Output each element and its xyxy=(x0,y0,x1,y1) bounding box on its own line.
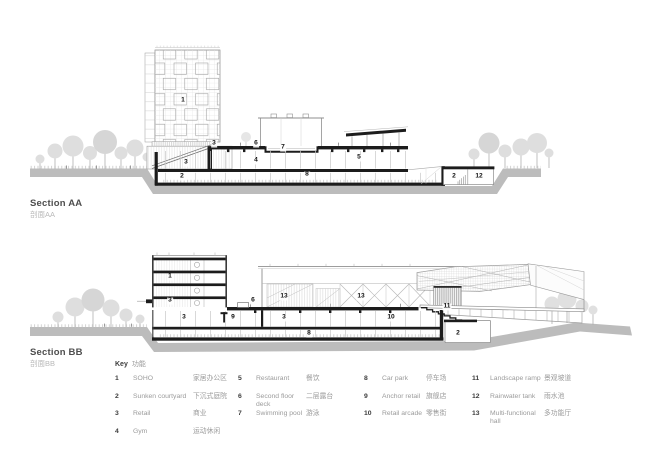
soho-block-bb xyxy=(137,253,227,308)
section-aa-subtitle: 剖面AA xyxy=(30,211,82,219)
swimming-pool xyxy=(266,146,318,152)
pergola-aa xyxy=(258,114,324,146)
key-item: 5Restaurant餐饮 xyxy=(238,375,333,393)
key-item-number: 9 xyxy=(364,393,379,401)
key-item-number: 3 xyxy=(115,410,130,418)
key-item-label-zh: 雨水池 xyxy=(544,393,571,401)
key-item-label-en: Swimming pool xyxy=(256,410,303,418)
key-item-label-en: Retail arcade xyxy=(382,410,423,418)
key-item-label-zh: 下沉式庭院 xyxy=(193,393,227,401)
truss-x-frames xyxy=(340,284,430,307)
basement-columns-bb xyxy=(158,311,438,327)
key-item-label-en: Rainwater tank xyxy=(490,393,541,401)
key-item-label-en: Gym xyxy=(133,428,190,436)
key-item-number: 12 xyxy=(472,393,487,401)
key-item: 13Multi-functional hall多功能厅 xyxy=(472,410,571,428)
key-item: 8Car park停车场 xyxy=(364,375,446,393)
soho-tower xyxy=(145,46,220,147)
bottom-slab-bb xyxy=(152,337,444,340)
tree-canopies-aa-left xyxy=(36,130,152,164)
key-title-zh: 功能 xyxy=(132,361,146,368)
key-item: 10Retail arcade零售街 xyxy=(364,410,446,428)
key-item: 11Landscape ramp景观坡道 xyxy=(472,375,571,393)
section-aa-graphic xyxy=(30,46,554,194)
basement-columns-aa xyxy=(162,151,407,169)
key-item: 6Second floor deck二层露台 xyxy=(238,393,333,411)
bottom-slab-aa xyxy=(155,183,445,186)
tree-canopies-aa-right xyxy=(469,133,554,160)
key-item-number: 8 xyxy=(364,375,379,383)
skylight-bb xyxy=(238,303,249,308)
key-item: 4Gym运动休闲 xyxy=(115,428,227,446)
sunken-courtyard-bb xyxy=(444,320,491,343)
key-item-label-zh: 多功能厅 xyxy=(544,410,571,418)
key-item-label-en: SOHO xyxy=(133,375,190,383)
key-item: 9Anchor retail旗舰店 xyxy=(364,393,446,411)
section-aa-title-block: Section AA 剖面AA xyxy=(30,199,82,219)
section-bb-title-block: Section BB 剖面BB xyxy=(30,348,83,368)
key-item-number: 2 xyxy=(115,393,130,401)
key-item-label-en: Sunken courtyard xyxy=(133,393,190,401)
key-item-label-zh: 商业 xyxy=(193,410,227,418)
section-aa-title: Section AA xyxy=(30,199,82,209)
key-item: 3Retail商业 xyxy=(115,410,227,428)
key-item-label-zh: 家居办公区 xyxy=(193,375,227,383)
key-item-label-zh: 停车场 xyxy=(426,375,446,383)
tree-canopies-bb-left xyxy=(53,289,145,324)
key-item-label-en: Restaurant xyxy=(256,375,303,383)
key-item-label-en: Anchor retail xyxy=(382,393,423,401)
key-item-number: 7 xyxy=(238,410,253,418)
key-column: 5Restaurant餐饮6Second floor deck二层露台7Swim… xyxy=(238,375,333,428)
key-title: Key xyxy=(115,361,128,368)
key-column: 11Landscape ramp景观坡道12Rainwater tank雨水池1… xyxy=(472,375,571,428)
key-item: 7Swimming pool游泳 xyxy=(238,410,333,428)
key-item-number: 4 xyxy=(115,428,130,436)
key-item-label-en: Car park xyxy=(382,375,423,383)
section-bb-subtitle: 剖面BB xyxy=(30,360,83,368)
key-column: 8Car park停车场9Anchor retail旗舰店10Retail ar… xyxy=(364,375,446,428)
key-item-label-zh: 旗舰店 xyxy=(426,393,446,401)
key-item-label-zh: 二层露台 xyxy=(306,393,333,401)
key-item-number: 6 xyxy=(238,393,253,401)
mid-slab-bb xyxy=(152,327,443,330)
key-item-label-zh: 景观坡道 xyxy=(544,375,571,383)
key-column: 1SOHO家居办公区2Sunken courtyard下沉式庭院3Retail商… xyxy=(115,375,227,445)
deck-slab-bb xyxy=(227,307,419,310)
key-item-number: 11 xyxy=(472,375,487,383)
key-item-label-zh: 零售街 xyxy=(426,410,446,418)
key-header: Key功能 xyxy=(115,361,146,369)
deck-slab-aa xyxy=(212,146,265,149)
key-item-label-zh: 运动休闲 xyxy=(193,428,227,436)
canopy-aa xyxy=(344,127,408,146)
rainwater-tank-block xyxy=(443,166,495,184)
section-bb-title: Section BB xyxy=(30,348,83,358)
key-item: 12Rainwater tank雨水池 xyxy=(472,393,571,411)
key-item-number: 13 xyxy=(472,410,487,418)
key-item-number: 10 xyxy=(364,410,379,418)
key-item-label-en: Landscape ramp xyxy=(490,375,541,383)
key-item-label-zh: 餐饮 xyxy=(306,375,333,383)
key-item-label-en: Retail xyxy=(133,410,190,418)
key-item: 1SOHO家居办公区 xyxy=(115,375,227,393)
key-item-label-en: Multi-functional hall xyxy=(490,410,541,426)
mid-slab-aa xyxy=(158,169,408,172)
key-item: 2Sunken courtyard下沉式庭院 xyxy=(115,393,227,411)
key-item-number: 5 xyxy=(238,375,253,383)
grille-box-bb xyxy=(434,286,462,307)
architectural-section-sheet: 1367453282121361313933108112 Section AA … xyxy=(0,0,650,459)
section-bb-graphic xyxy=(30,253,632,353)
key-item-label-zh: 游泳 xyxy=(306,410,333,418)
key-item-label-en: Second floor deck xyxy=(256,393,303,409)
key-item-number: 1 xyxy=(115,375,130,383)
